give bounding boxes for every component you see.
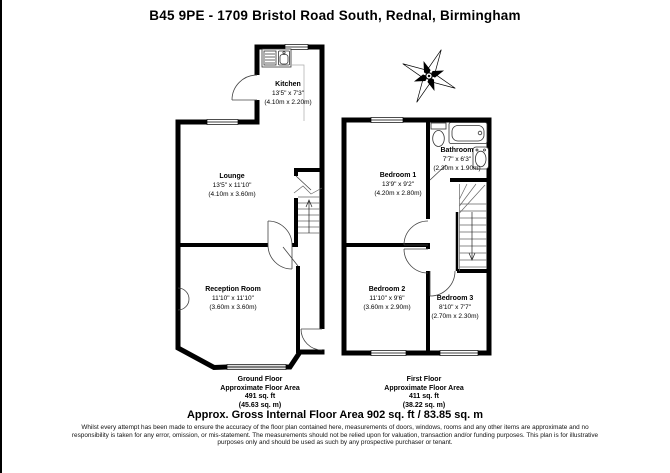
floor-name: Ground Floor xyxy=(220,376,299,385)
room-size-metric: (3.60m x 3.60m) xyxy=(205,303,261,312)
room-name: Kitchen xyxy=(264,80,311,89)
floor-area-imperial: 411 sq. ft xyxy=(384,393,463,402)
ground-floor-stairs xyxy=(294,186,322,233)
first-floor-stairs xyxy=(460,184,488,271)
disclaimer-text: Whilst every attempt has been made to en… xyxy=(70,424,600,447)
hall-reception-door xyxy=(283,247,298,266)
room-size-metric: (4.10m x 2.20m) xyxy=(264,98,311,107)
ground-floor-caption: Ground Floor Approximate Floor Area 491 … xyxy=(220,376,299,410)
floor-name: First Floor xyxy=(384,376,463,385)
room-label-lounge: Lounge 13'5" x 11'10" (4.10m x 3.60m) xyxy=(208,172,255,199)
floor-area-label: Approximate Floor Area xyxy=(384,385,463,394)
stairs-up-arrow xyxy=(306,200,312,233)
kitchen-sink-unit-icon xyxy=(262,49,291,67)
bedroom2-window xyxy=(371,351,406,356)
lounge-window xyxy=(207,120,238,125)
room-label-bedroom1: Bedroom 1 13'9" x 9'2" (4.20m x 2.80m) xyxy=(374,171,421,198)
room-size-metric: (2.30m x 1.90m) xyxy=(433,164,480,173)
floor-area-imperial: 491 sq. ft xyxy=(220,393,299,402)
room-size-imperial: 8'10" x 7'7" xyxy=(431,303,478,312)
stairs-door xyxy=(296,176,311,190)
room-size-imperial: 11'10" x 11'10" xyxy=(205,294,261,303)
room-name: Lounge xyxy=(208,172,255,181)
room-label-bathroom: Bathroom 7'7" x 6'3" (2.30m x 1.90m) xyxy=(433,146,480,173)
room-label-kitchen: Kitchen 13'5" x 7'3" (4.10m x 2.20m) xyxy=(264,80,311,107)
stairs-winders xyxy=(460,184,486,213)
back-door xyxy=(232,75,257,100)
bedroom1-window xyxy=(371,118,403,123)
bedroom3-door xyxy=(430,271,455,296)
room-size-imperial: 11'10" x 9'6" xyxy=(363,294,410,303)
room-size-imperial: 7'7" x 6'3" xyxy=(433,155,480,164)
bedroom3-window xyxy=(440,351,478,356)
room-size-imperial: 13'5" x 11'10" xyxy=(208,181,255,190)
gross-area-summary: Approx. Gross Internal Floor Area 902 sq… xyxy=(0,409,670,421)
room-label-bedroom2: Bedroom 2 11'10" x 9'6" (3.60m x 2.90m) xyxy=(363,285,410,312)
room-name: Reception Room xyxy=(205,285,261,294)
toilet-icon xyxy=(431,123,446,147)
bathtub-icon xyxy=(449,123,487,144)
bay-window xyxy=(227,365,286,370)
front-door xyxy=(301,329,322,350)
room-size-metric: (3.60m x 2.90m) xyxy=(363,303,410,312)
room-name: Bathroom xyxy=(433,146,480,155)
room-name: Bedroom 1 xyxy=(374,171,421,180)
floorplan-drawing xyxy=(0,0,670,473)
room-size-imperial: 13'5" x 7'3" xyxy=(264,89,311,98)
floorplan-page: B45 9PE - 1709 Bristol Road South, Redna… xyxy=(0,0,670,473)
lounge-reception-doors xyxy=(268,221,292,269)
room-size-metric: (4.20m x 2.80m) xyxy=(374,189,421,198)
bedroom1-door xyxy=(404,221,428,245)
first-floor-caption: First Floor Approximate Floor Area 411 s… xyxy=(384,376,463,410)
room-label-reception: Reception Room 11'10" x 11'10" (3.60m x … xyxy=(205,285,261,312)
room-size-metric: (4.10m x 3.60m) xyxy=(208,190,255,199)
room-size-metric: (2.70m x 2.30m) xyxy=(431,312,478,321)
bedroom2-door xyxy=(404,249,428,273)
floor-area-label: Approximate Floor Area xyxy=(220,385,299,394)
room-size-imperial: 13'9" x 9'2" xyxy=(374,180,421,189)
room-name: Bedroom 3 xyxy=(431,294,478,303)
room-name: Bedroom 2 xyxy=(363,285,410,294)
room-label-bedroom3: Bedroom 3 8'10" x 7'7" (2.70m x 2.30m) xyxy=(431,294,478,321)
compass-rose-icon xyxy=(390,37,467,114)
